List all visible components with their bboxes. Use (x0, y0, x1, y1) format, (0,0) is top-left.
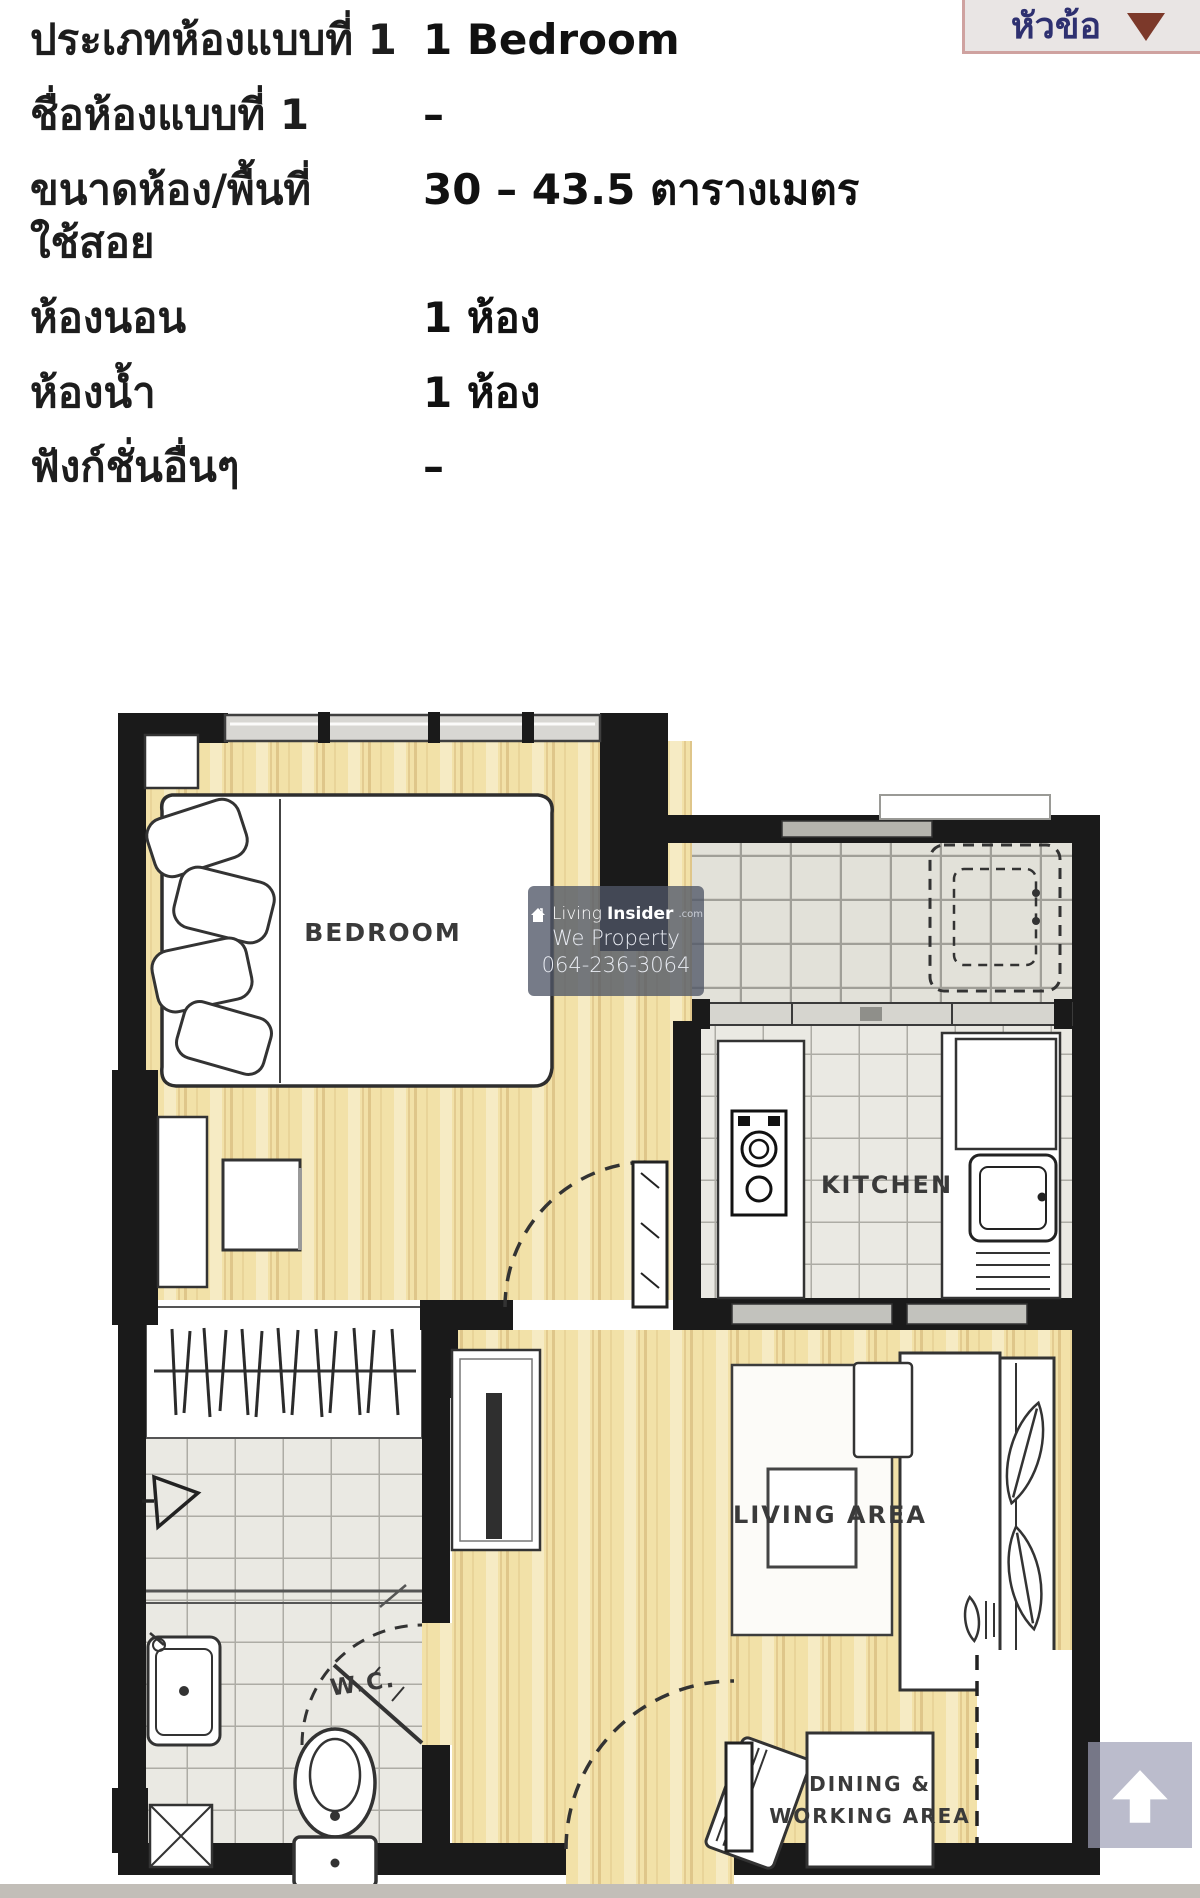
living-area-label: LIVING AREA (733, 1501, 927, 1529)
up-arrow-icon (1102, 1757, 1178, 1833)
detail-label: ฟังก์ชั่นอื่นๆ (30, 441, 423, 494)
watermark-line2: We Property (552, 925, 680, 951)
detail-value: 1 ห้อง (423, 292, 540, 345)
image-bottom-edge (0, 1884, 1200, 1898)
dresser (158, 1117, 207, 1287)
detail-label: ขนาดห้อง/พื้นที่ ใช้สอย (30, 164, 423, 270)
nightstand (145, 735, 198, 788)
pass-through-window (732, 1304, 1027, 1324)
floor-drain (150, 1805, 212, 1867)
brand-bold: Insider (607, 904, 673, 925)
detail-label: ประเภทห้องแบบที่ 1 (30, 14, 423, 67)
property-listing-page: { "header": { "topic_button": { "label":… (0, 0, 1200, 1898)
watermark-phone: 064-236-3064 (542, 952, 691, 978)
bedside-table (223, 1160, 300, 1250)
bedroom-window (225, 712, 600, 743)
stove (732, 1111, 786, 1215)
bedroom-label: BEDROOM (304, 918, 462, 947)
house-icon (529, 906, 547, 924)
detail-row-size: ขนาดห้อง/พื้นที่ ใช้สอย 30 – 43.5 ตารางเ… (30, 164, 1180, 270)
brand-suffix: .com (678, 909, 703, 922)
topic-dropdown-button[interactable]: หัวข้อ (962, 0, 1200, 54)
floor-plan-image: BEDROOM (92, 593, 1132, 1893)
detail-value: – (423, 441, 444, 494)
detail-row-other-functions: ฟังก์ชั่นอื่นๆ – (30, 441, 1180, 494)
tv-cabinet (452, 1350, 540, 1550)
brand-light: Living (552, 904, 602, 925)
bathroom-sink (148, 1633, 220, 1745)
watermark: LivingInsider.com We Property 064-236-30… (528, 886, 704, 996)
balcony-threshold (977, 1650, 1072, 1843)
detail-value: – (423, 89, 444, 142)
detail-label: ห้องนอน (30, 292, 423, 345)
detail-value: 1 Bedroom (423, 14, 680, 67)
detail-label: ห้องน้ำ (30, 367, 423, 420)
sliding-door (692, 999, 1072, 1029)
dining-area-label-line2: WORKING AREA (769, 1804, 971, 1828)
detail-row-bathrooms: ห้องน้ำ 1 ห้อง (30, 367, 1180, 420)
detail-row-bedrooms: ห้องนอน 1 ห้อง (30, 292, 1180, 345)
watermark-brand: LivingInsider.com (529, 904, 703, 925)
detail-value: 30 – 43.5 ตารางเมตร (423, 164, 859, 270)
unit-details-table: ประเภทห้องแบบที่ 1 1 Bedroom ชื่อห้องแบบ… (30, 14, 1180, 516)
kitchen-label: KITCHEN (821, 1171, 953, 1199)
wardrobe (146, 1307, 422, 1438)
balcony-tile-floor (692, 843, 1072, 1003)
detail-row-name: ชื่อห้องแบบที่ 1 – (30, 89, 1180, 142)
chevron-down-icon (1127, 13, 1165, 41)
detail-label: ชื่อห้องแบบที่ 1 (30, 89, 423, 142)
scroll-to-top-button[interactable] (1088, 1742, 1192, 1848)
toilet (294, 1729, 376, 1887)
dining-area-label-line1: DINING & (809, 1772, 931, 1796)
detail-value: 1 ห้อง (423, 367, 540, 420)
dining-label-box (807, 1733, 933, 1867)
topic-button-label: หัวข้อ (1011, 9, 1101, 45)
